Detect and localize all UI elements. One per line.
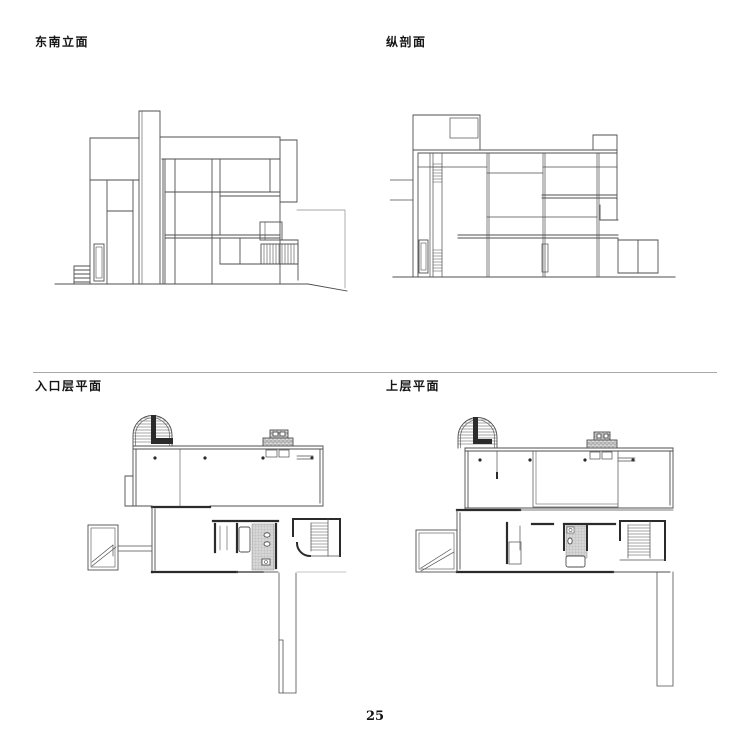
label-southeast-elevation: 东南立面 [35,33,89,50]
deck [88,525,118,570]
chimney [139,111,160,284]
deck [416,530,457,572]
label-longitudinal-section: 纵剖面 [386,33,427,50]
bedroom-partitions [507,523,615,564]
section-door [419,240,428,273]
ground-line [55,284,347,291]
semicircular-stair [130,415,175,446]
terrace-railing [261,240,298,280]
page-number: 25 [0,709,750,724]
longitudinal-section-drawing [390,100,690,290]
entrance-level-plan-drawing [30,388,360,708]
entry-door [94,244,104,281]
stair-shaft [430,153,442,277]
fireplace [587,432,617,459]
southeast-elevation-drawing [50,92,350,292]
book-page: { "page": { "number": "25", "background_… [0,0,750,750]
right-stair [620,521,665,560]
right-stair [293,519,340,556]
walkway [657,572,673,686]
entry-walkway [279,572,346,693]
entry-steps [74,266,90,284]
bathroom [564,524,587,567]
upper-level-plan-drawing [380,390,710,690]
semicircular-stair [455,417,500,448]
section-divider-rule [33,372,717,373]
void-open-to-below [533,451,618,507]
fireplace [263,430,293,457]
columns [153,456,313,459]
bathroom [213,521,278,570]
